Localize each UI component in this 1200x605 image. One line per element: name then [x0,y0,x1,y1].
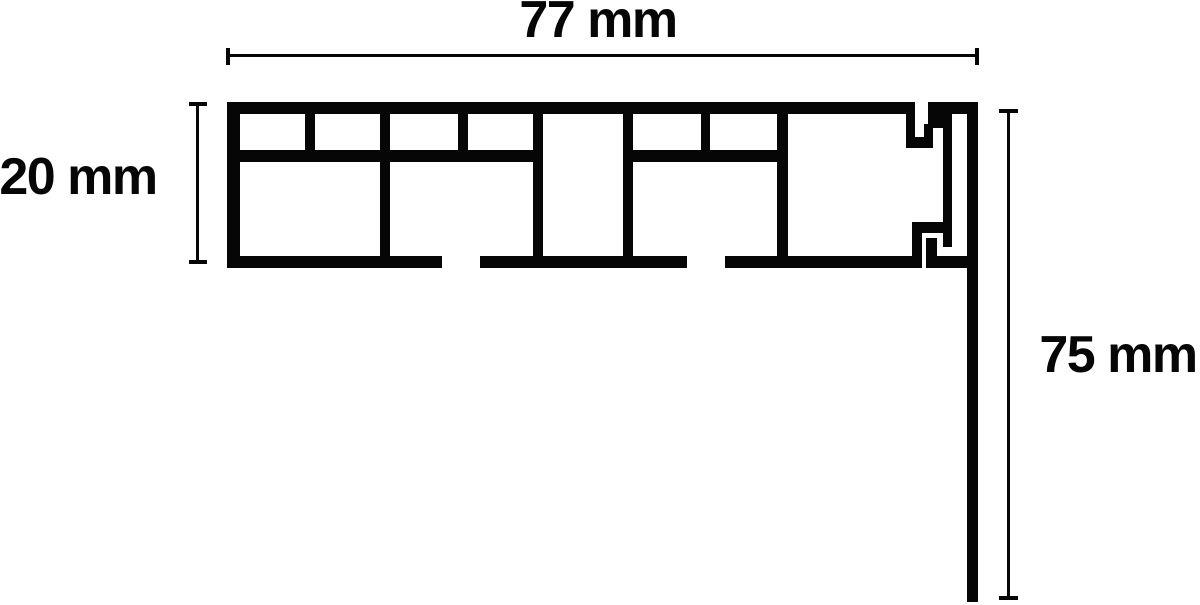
width-dim-tick-right [975,48,979,65]
drop-dim-tick-bottom [999,596,1018,600]
height-dim-tick-top [189,102,207,106]
width-dim-tick-left [226,48,230,65]
height-dim-line [196,104,199,262]
drop-dim-line [1007,111,1010,598]
dimension-lines [0,0,1200,605]
height-dim-tick-bottom [189,260,207,264]
width-dimension-label: 77 mm [519,0,676,46]
drop-dimension-label: 75 mm [1039,329,1196,381]
height-dimension-label: 20 mm [0,151,157,203]
profile-dimension-drawing: 77 mm 20 mm 75 mm [0,0,1200,605]
width-dim-line [227,54,978,57]
drop-dim-tick-top [999,109,1018,113]
